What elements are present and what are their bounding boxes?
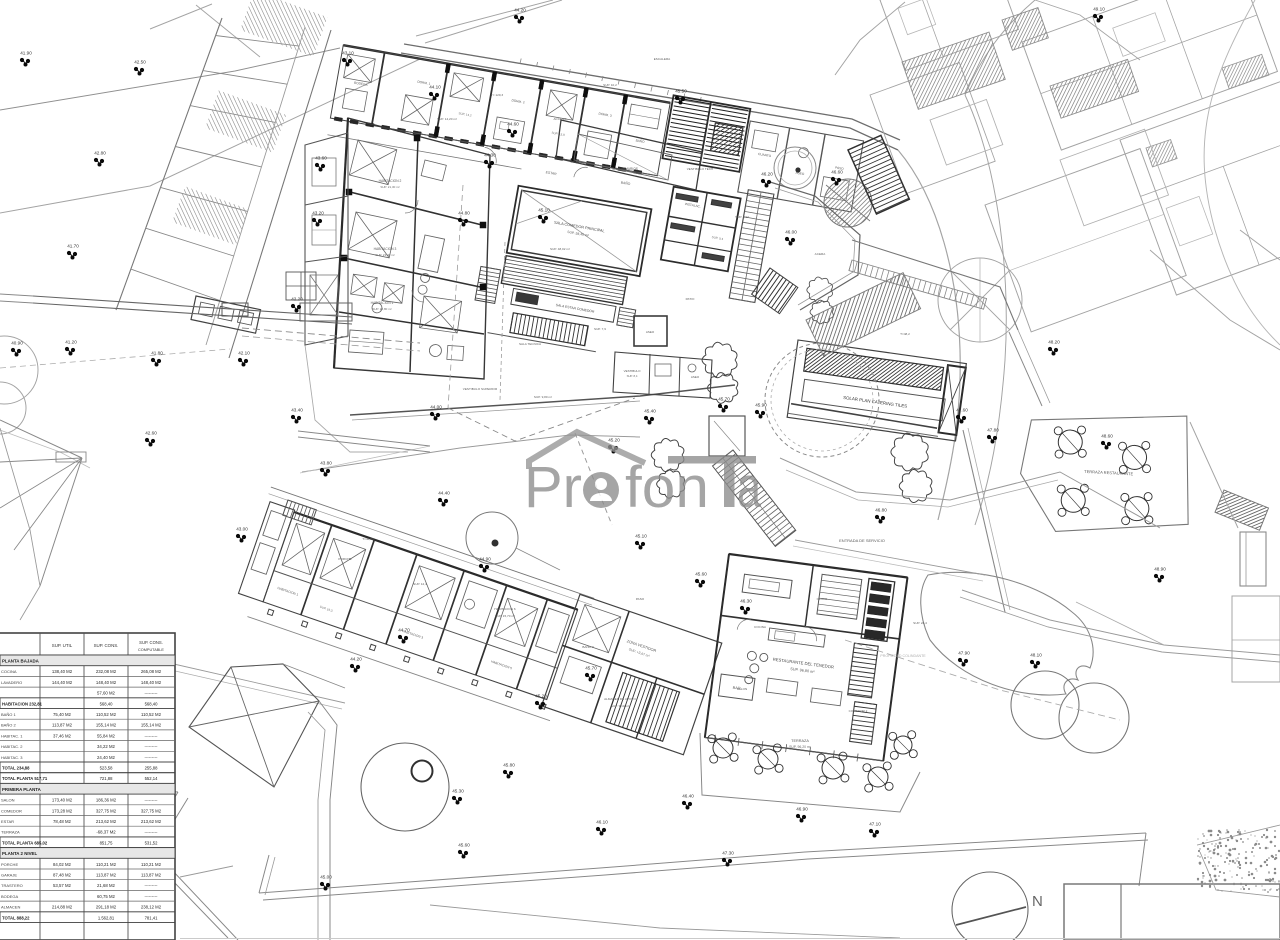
svg-text:44.90: 44.90 — [479, 557, 491, 562]
svg-text:44.10: 44.10 — [429, 85, 441, 90]
svg-text:SUP. 10,2: SUP. 10,2 — [603, 83, 617, 87]
svg-text:---------: --------- — [145, 691, 158, 696]
svg-text:PASO: PASO — [636, 597, 645, 601]
svg-text:21,68 M2: 21,68 M2 — [97, 883, 116, 888]
svg-text:110,21 M2: 110,21 M2 — [96, 862, 117, 867]
svg-text:75,40 M2: 75,40 M2 — [53, 712, 72, 717]
svg-text:TOTAL PLANTA 685,02: TOTAL PLANTA 685,02 — [2, 840, 48, 845]
svg-text:---------: --------- — [145, 733, 158, 738]
svg-text:255,88: 255,88 — [145, 766, 158, 771]
svg-text:42.60: 42.60 — [145, 431, 157, 436]
svg-text:155,14 M2: 155,14 M2 — [141, 723, 162, 728]
svg-text:43.80: 43.80 — [320, 461, 332, 466]
svg-text:SALA TECNICA: SALA TECNICA — [519, 342, 542, 346]
svg-text:49.10: 49.10 — [1093, 7, 1105, 12]
svg-text:SUP. 21,30 m²: SUP. 21,30 m² — [380, 185, 399, 189]
svg-text:SUP. CONS.: SUP. CONS. — [139, 640, 163, 645]
svg-text:44.20: 44.20 — [350, 657, 362, 662]
svg-text:SALON: SALON — [1, 798, 15, 803]
svg-text:138,40 M2: 138,40 M2 — [52, 669, 73, 674]
svg-text:46.20: 46.20 — [761, 172, 773, 177]
svg-text:BAÑO 3: BAÑO 3 — [582, 644, 594, 649]
svg-text:41.90: 41.90 — [20, 51, 32, 56]
svg-text:SUP. 7,9: SUP. 7,9 — [594, 327, 606, 331]
svg-text:SALA ARMARIOS: SALA ARMARIOS — [612, 167, 638, 171]
svg-text:110,52 M2: 110,52 M2 — [141, 712, 162, 717]
svg-text:44.40: 44.40 — [438, 491, 450, 496]
svg-text:SUP. 23,40 m²: SUP. 23,40 m² — [375, 253, 394, 257]
svg-text:COMEDOR: COMEDOR — [1, 808, 22, 813]
svg-text:45.20: 45.20 — [535, 694, 547, 699]
svg-text:HABITAC. 1: HABITAC. 1 — [1, 733, 23, 738]
svg-text:HABITACION 3: HABITACION 3 — [374, 247, 397, 251]
svg-text:78,48 M2: 78,48 M2 — [53, 819, 72, 824]
svg-text:---------: --------- — [145, 830, 158, 835]
svg-text:148,40 M2: 148,40 M2 — [141, 680, 162, 685]
svg-text:T= 120,3: T= 120,3 — [491, 93, 504, 97]
svg-text:---------: --------- — [145, 894, 158, 899]
svg-text:HABITAC. 3: HABITAC. 3 — [1, 755, 23, 760]
svg-text:45.70: 45.70 — [585, 666, 597, 671]
svg-text:47.30: 47.30 — [722, 851, 734, 856]
svg-text:113,87 M2: 113,87 M2 — [52, 723, 73, 728]
svg-text:40.90: 40.90 — [11, 341, 23, 346]
svg-text:45.60: 45.60 — [695, 572, 707, 577]
svg-text:fon: fon — [625, 455, 709, 520]
svg-text:43.20: 43.20 — [312, 211, 324, 216]
svg-text:47.90: 47.90 — [958, 651, 970, 656]
svg-text:---------: --------- — [145, 883, 158, 888]
svg-text:523,58: 523,58 — [100, 766, 113, 771]
svg-text:44.80: 44.80 — [458, 211, 470, 216]
svg-text:44.70: 44.70 — [398, 628, 410, 633]
svg-text:47.60: 47.60 — [956, 408, 968, 413]
svg-text:COCINA: COCINA — [754, 625, 767, 629]
svg-text:265,08 M2: 265,08 M2 — [141, 669, 162, 674]
svg-text:45.10: 45.10 — [538, 208, 550, 213]
svg-text:45.70: 45.70 — [718, 397, 730, 402]
svg-text:PATIO: PATIO — [686, 297, 695, 301]
svg-text:144,40 M2: 144,40 M2 — [52, 680, 73, 685]
svg-text:781,41: 781,41 — [145, 915, 158, 920]
svg-text:45.50: 45.50 — [675, 89, 687, 94]
svg-text:HABITACION 6: HABITACION 6 — [494, 607, 516, 611]
svg-text:46.00: 46.00 — [785, 230, 797, 235]
svg-text:---------: --------- — [145, 798, 158, 803]
svg-text:HABITACION 232,81: HABITACION 232,81 — [2, 701, 43, 706]
svg-text:TRASTERO: TRASTERO — [1, 883, 23, 888]
svg-text:TERRAZA: TERRAZA — [1, 830, 20, 835]
svg-text:GARAJE: GARAJE — [1, 873, 17, 878]
svg-text:48.20: 48.20 — [1048, 340, 1060, 345]
svg-text:46.80: 46.80 — [875, 508, 887, 513]
svg-text:SUP. 12,4: SUP. 12,4 — [413, 582, 427, 586]
svg-text:34,22 M2: 34,22 M2 — [97, 744, 116, 749]
svg-text:TOTAL PLANTA 517,71: TOTAL PLANTA 517,71 — [2, 776, 48, 781]
svg-text:---------: --------- — [145, 755, 158, 760]
svg-text:SUP. 24,80 m²: SUP. 24,80 m² — [372, 307, 391, 311]
svg-text:PROPIEDAD COLINDANTE: PROPIEDAD COLINDANTE — [880, 654, 926, 658]
svg-text:531,52: 531,52 — [145, 840, 158, 845]
svg-text:155,14 M2: 155,14 M2 — [96, 723, 117, 728]
svg-text:53,57 M2: 53,57 M2 — [53, 883, 72, 888]
svg-text:ACCESO: ACCESO — [553, 117, 567, 121]
svg-text:552,14: 552,14 — [145, 776, 158, 781]
svg-text:---------: --------- — [145, 744, 158, 749]
svg-text:SUP. 6,12: SUP. 6,12 — [735, 215, 749, 219]
svg-text:ASEO: ASEO — [646, 330, 655, 334]
svg-text:568,40: 568,40 — [145, 701, 158, 706]
svg-text:214,88 M2: 214,88 M2 — [52, 905, 73, 910]
svg-text:44.60: 44.60 — [507, 122, 519, 127]
svg-text:LAVADERO: LAVADERO — [1, 680, 22, 685]
svg-text:46.10: 46.10 — [596, 820, 608, 825]
svg-text:213,62 M2: 213,62 M2 — [96, 819, 117, 824]
svg-text:110,21 M2: 110,21 M2 — [141, 862, 162, 867]
svg-text:45.40: 45.40 — [644, 409, 656, 414]
svg-text:VESTIBULO: VESTIBULO — [624, 369, 642, 373]
svg-text:45.80: 45.80 — [503, 763, 515, 768]
svg-text:SUP. 48,02 m²: SUP. 48,02 m² — [550, 247, 570, 251]
svg-text:VESTIBULO TECH: VESTIBULO TECH — [687, 167, 714, 171]
svg-text:24,40 M2: 24,40 M2 — [97, 755, 116, 760]
svg-text:45.30: 45.30 — [452, 789, 464, 794]
svg-text:COMEDOR 2: COMEDOR 2 — [849, 709, 868, 713]
svg-text:VESTIBULO SUPERIOR: VESTIBULO SUPERIOR — [463, 387, 498, 391]
svg-text:568,40: 568,40 — [100, 701, 113, 706]
svg-text:44.30: 44.30 — [484, 153, 496, 158]
svg-text:PLANTA 2 NIVEL: PLANTA 2 NIVEL — [2, 851, 37, 856]
svg-text:COMPUTABLE: COMPUTABLE — [138, 648, 164, 652]
svg-text:TOTAL 888,22: TOTAL 888,22 — [2, 915, 30, 920]
svg-text:COCINA: COCINA — [1, 669, 17, 674]
svg-text:-68,37 M2: -68,37 M2 — [96, 830, 116, 835]
svg-text:46.40: 46.40 — [682, 794, 694, 799]
svg-text:43.10: 43.10 — [342, 51, 354, 56]
svg-text:45.20: 45.20 — [608, 438, 620, 443]
svg-text:148,40 M2: 148,40 M2 — [96, 680, 117, 685]
svg-text:SALON: SALON — [737, 687, 748, 691]
svg-text:721,88: 721,88 — [100, 776, 113, 781]
svg-text:T=48,2: T=48,2 — [900, 332, 910, 336]
svg-text:173,28 M2: 173,28 M2 — [52, 808, 73, 813]
svg-text:BODEGA: BODEGA — [1, 894, 18, 899]
svg-text:291,18 M2: 291,18 M2 — [96, 905, 117, 910]
svg-text:42.10: 42.10 — [238, 351, 250, 356]
svg-text:87,48 M2: 87,48 M2 — [53, 873, 72, 878]
svg-text:113,87 M2: 113,87 M2 — [141, 873, 162, 878]
svg-text:173,40 M2: 173,40 M2 — [52, 798, 73, 803]
svg-text:SUP. 14,20 m²: SUP. 14,20 m² — [437, 117, 457, 121]
svg-text:PRIMERA PLANTA: PRIMERA PLANTA — [2, 787, 42, 792]
svg-text:48.10: 48.10 — [1030, 653, 1042, 658]
svg-text:48.90: 48.90 — [1154, 567, 1166, 572]
svg-text:ESTAR: ESTAR — [1, 819, 14, 824]
svg-text:213,62 M2: 213,62 M2 — [141, 819, 162, 824]
svg-text:ALMACEN DE APOYO: ALMACEN DE APOYO — [604, 697, 636, 701]
svg-text:BAÑO 1: BAÑO 1 — [1, 712, 16, 717]
svg-text:41.70: 41.70 — [67, 244, 79, 249]
svg-text:46.60: 46.60 — [831, 170, 843, 175]
svg-text:SUP. CONS.: SUP. CONS. — [94, 643, 119, 648]
svg-text:SUP. 9,80 m²: SUP. 9,80 m² — [534, 395, 552, 399]
svg-text:45.00: 45.00 — [320, 875, 332, 880]
svg-text:238,12 M2: 238,12 M2 — [141, 905, 162, 910]
svg-text:43.40: 43.40 — [291, 408, 303, 413]
svg-text:37,46 M2: 37,46 M2 — [53, 733, 72, 738]
svg-text:a: a — [737, 455, 762, 520]
svg-text:47.10: 47.10 — [869, 822, 881, 827]
svg-text:45.10: 45.10 — [635, 534, 647, 539]
svg-text:55,84 M2: 55,84 M2 — [97, 733, 116, 738]
svg-text:PORCHE: PORCHE — [338, 557, 351, 561]
svg-text:186,36 M2: 186,36 M2 — [96, 798, 117, 803]
svg-text:327,75 M2: 327,75 M2 — [141, 808, 162, 813]
svg-text:46.90: 46.90 — [796, 807, 808, 812]
svg-text:41.20: 41.20 — [65, 340, 77, 345]
svg-text:84,02 M2: 84,02 M2 — [53, 862, 72, 867]
svg-text:TERRAZA: TERRAZA — [791, 739, 809, 743]
svg-text:44.20: 44.20 — [514, 8, 526, 13]
svg-text:46.30: 46.30 — [740, 599, 752, 604]
svg-text:BAÑO 2: BAÑO 2 — [1, 723, 16, 728]
svg-text:57,60 M2: 57,60 M2 — [97, 691, 116, 696]
svg-text:HABITACION 2: HABITACION 2 — [379, 179, 402, 183]
svg-text:T=44,80: T=44,80 — [362, 537, 374, 541]
svg-text:43.60: 43.60 — [315, 156, 327, 161]
svg-text:42.50: 42.50 — [134, 60, 146, 65]
svg-text:48.60: 48.60 — [1101, 434, 1113, 439]
svg-text:PLANTA BAJADA: PLANTA BAJADA — [2, 659, 40, 664]
svg-text:OFICIO: OFICIO — [817, 597, 828, 601]
svg-text:44.00: 44.00 — [430, 405, 442, 410]
svg-text:327,75 M2: 327,75 M2 — [96, 808, 117, 813]
svg-text:ACERA: ACERA — [815, 252, 827, 256]
svg-text:ASEO: ASEO — [691, 375, 700, 379]
svg-text:113,87 M2: 113,87 M2 — [96, 873, 117, 878]
svg-text:110,52 M2: 110,52 M2 — [96, 712, 117, 717]
svg-text:SUP. 96,20 m²: SUP. 96,20 m² — [789, 745, 812, 749]
svg-text:SUP. 9,10 m²: SUP. 9,10 m² — [611, 704, 629, 708]
svg-text:1.562,81: 1.562,81 — [98, 915, 115, 920]
svg-text:Pr: Pr — [524, 455, 582, 520]
svg-text:HABITACION 1: HABITACION 1 — [371, 301, 394, 305]
svg-text:ESCALERA: ESCALERA — [654, 57, 671, 61]
svg-text:232,08 M2: 232,08 M2 — [96, 669, 117, 674]
svg-text:851,75: 851,75 — [100, 840, 113, 845]
svg-text:45.90: 45.90 — [755, 403, 767, 408]
svg-text:60,75 M2: 60,75 M2 — [97, 894, 116, 899]
svg-text:ENTRADA DE SERVICIO: ENTRADA DE SERVICIO — [839, 538, 885, 543]
svg-text:TOTAL 234,88: TOTAL 234,88 — [2, 766, 30, 771]
svg-text:SUP. 8,4: SUP. 8,4 — [627, 374, 638, 378]
svg-text:42.80: 42.80 — [94, 151, 106, 156]
svg-text:N: N — [1032, 893, 1043, 910]
svg-text:SUP. 22,4: SUP. 22,4 — [913, 621, 927, 625]
svg-text:43.00: 43.00 — [236, 527, 248, 532]
svg-text:45.60: 45.60 — [458, 843, 470, 848]
svg-text:42.20: 42.20 — [291, 297, 303, 302]
svg-text:SUP. UTIL: SUP. UTIL — [52, 643, 73, 648]
svg-text:41.80: 41.80 — [151, 351, 163, 356]
svg-text:HABITAC. 2: HABITAC. 2 — [1, 744, 23, 749]
svg-text:ALMACEN: ALMACEN — [1, 905, 20, 910]
svg-text:SUP. 15,70 m²: SUP. 15,70 m² — [495, 614, 515, 618]
svg-text:47.80: 47.80 — [987, 428, 999, 433]
svg-text:PORCHE: PORCHE — [1, 862, 18, 867]
